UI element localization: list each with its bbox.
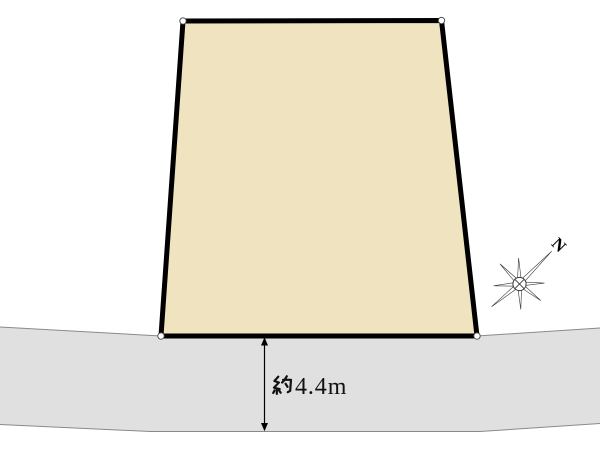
- svg-text:N: N: [548, 234, 571, 257]
- svg-text:4.4m: 4.4m: [295, 374, 347, 400]
